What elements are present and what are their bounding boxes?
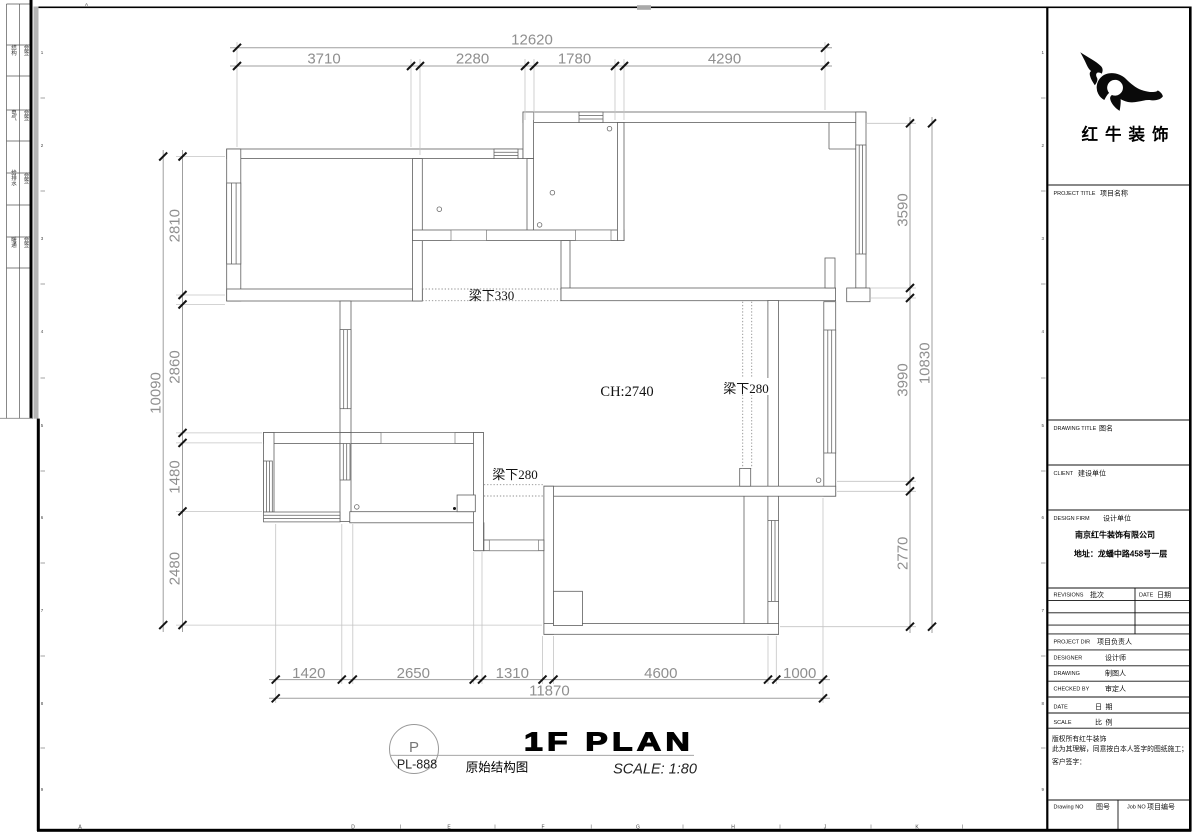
- svg-text:4600: 4600: [644, 665, 677, 682]
- svg-text:项目编号: 项目编号: [1147, 802, 1175, 811]
- svg-text:3710: 3710: [307, 51, 340, 68]
- svg-text:DESIGNER: DESIGNER: [1054, 656, 1083, 662]
- svg-text:2280: 2280: [456, 51, 489, 68]
- svg-text:Drawing NO: Drawing NO: [1054, 805, 1085, 811]
- svg-text:F: F: [541, 825, 544, 831]
- svg-text:12620: 12620: [511, 32, 553, 49]
- svg-text:版权所有红牛装饰: 版权所有红牛装饰: [1052, 734, 1107, 743]
- svg-text:日期: 日期: [1157, 591, 1171, 599]
- svg-text:G: G: [636, 825, 640, 831]
- svg-text:1480: 1480: [167, 460, 184, 493]
- svg-text:H: H: [731, 825, 735, 831]
- svg-text:此为其理解，同意按白本人签字的图纸施工；: 此为其理解，同意按白本人签字的图纸施工；: [1052, 744, 1188, 753]
- svg-text:客户签字：: 客户签字：: [1052, 757, 1086, 766]
- svg-text:A: A: [85, 2, 88, 7]
- svg-text:DATE: DATE: [1054, 705, 1069, 711]
- svg-text:P: P: [409, 739, 419, 756]
- svg-text:会签: 会签: [23, 108, 30, 121]
- svg-text:10830: 10830: [917, 342, 934, 384]
- svg-text:1780: 1780: [558, 51, 591, 68]
- svg-text:图号: 图号: [1096, 803, 1110, 811]
- svg-text:DRAWING: DRAWING: [1054, 671, 1080, 677]
- svg-text:4290: 4290: [708, 51, 741, 68]
- svg-text:11870: 11870: [529, 683, 570, 700]
- svg-text:D: D: [351, 825, 355, 831]
- svg-text:项目负责人: 项目负责人: [1097, 637, 1132, 646]
- svg-text:南京红牛装饰有限公司: 南京红牛装饰有限公司: [1075, 530, 1155, 540]
- svg-text:给排水: 给排水: [10, 169, 17, 187]
- svg-text:电气: 电气: [10, 108, 17, 121]
- svg-text:日 期: 日 期: [1095, 703, 1113, 711]
- svg-text:设计师: 设计师: [1105, 653, 1126, 662]
- svg-text:审定人: 审定人: [1105, 684, 1126, 693]
- svg-text:批次: 批次: [1090, 590, 1104, 599]
- svg-text:设计单位: 设计单位: [1103, 514, 1131, 523]
- svg-text:CHECKED BY: CHECKED BY: [1054, 687, 1090, 693]
- svg-text:梁下330: 梁下330: [469, 288, 515, 303]
- svg-text:PL-888: PL-888: [397, 758, 437, 772]
- svg-text:2770: 2770: [895, 537, 912, 570]
- svg-text:PROJECT TITLE: PROJECT TITLE: [1054, 191, 1096, 197]
- svg-text:SCALE: 1:80: SCALE: 1:80: [613, 762, 697, 778]
- svg-text:原始结构图: 原始结构图: [466, 760, 529, 775]
- svg-text:红牛装饰: 红牛装饰: [1082, 124, 1176, 144]
- svg-text:DRAWING TITLE: DRAWING TITLE: [1054, 426, 1097, 432]
- svg-text:REVISIONS: REVISIONS: [1054, 593, 1084, 599]
- svg-text:会签: 会签: [23, 235, 30, 248]
- svg-text:1F PLAN: 1F PLAN: [524, 728, 694, 756]
- svg-text:2650: 2650: [397, 665, 430, 682]
- svg-text:Job NO: Job NO: [1127, 805, 1146, 811]
- svg-text:PROJECT DIR: PROJECT DIR: [1054, 640, 1091, 646]
- svg-text:比 例: 比 例: [1095, 718, 1113, 727]
- svg-text:项目名称: 项目名称: [1100, 189, 1128, 198]
- svg-text:暖通: 暖通: [10, 235, 17, 249]
- svg-text:梁下280: 梁下280: [723, 381, 769, 396]
- svg-text:结构: 结构: [10, 43, 17, 57]
- svg-text:10090: 10090: [148, 372, 165, 414]
- svg-text:2860: 2860: [167, 350, 184, 383]
- svg-text:建设单位: 建设单位: [1078, 469, 1106, 478]
- svg-text:会签: 会签: [23, 171, 30, 184]
- svg-text:DATE: DATE: [1139, 593, 1154, 599]
- svg-text:梁下280: 梁下280: [492, 467, 538, 482]
- svg-text:图名: 图名: [1099, 424, 1113, 433]
- svg-text:3590: 3590: [895, 193, 912, 226]
- svg-text:1000: 1000: [783, 665, 816, 682]
- svg-text:会签: 会签: [23, 43, 30, 56]
- svg-text:1310: 1310: [496, 665, 529, 682]
- svg-text:1420: 1420: [292, 665, 325, 682]
- svg-text:SCALE: SCALE: [1054, 720, 1072, 726]
- svg-text:CH:2740: CH:2740: [600, 384, 653, 400]
- svg-text:DESIGN FIRM: DESIGN FIRM: [1054, 516, 1090, 522]
- svg-text:地址：龙蟠中路458号一层: 地址：龙蟠中路458号一层: [1074, 549, 1167, 559]
- svg-text:2810: 2810: [167, 209, 184, 242]
- svg-text:3990: 3990: [895, 363, 912, 396]
- svg-text:2480: 2480: [167, 552, 184, 585]
- svg-text:CLIENT: CLIENT: [1054, 471, 1074, 477]
- svg-text:制图人: 制图人: [1105, 669, 1126, 678]
